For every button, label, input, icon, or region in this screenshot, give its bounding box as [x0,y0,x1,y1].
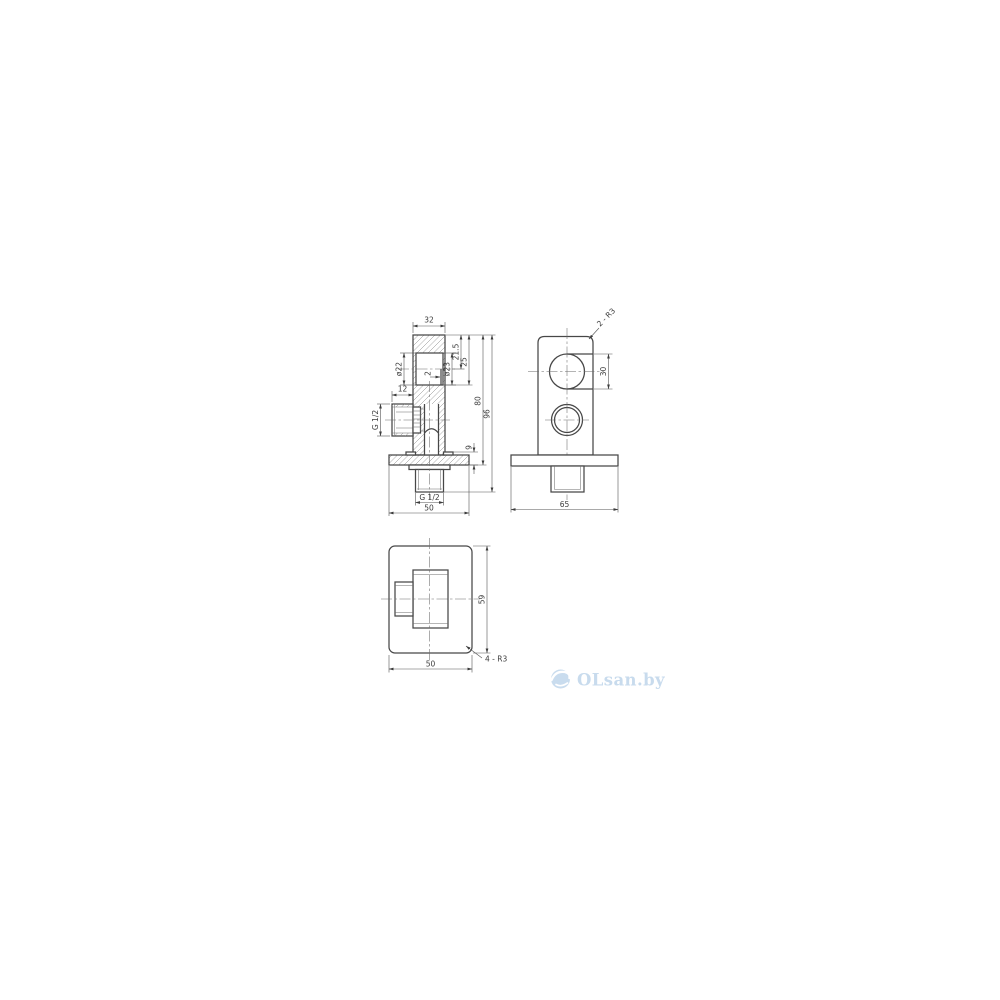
watermark-text: OLsan.by [577,671,665,690]
dim-50-plan: 50 [426,660,436,669]
dim-96: 96 [483,409,492,419]
dim-9: 9 [465,445,474,450]
internal-channel [425,404,439,455]
stub-thread-top [392,404,413,407]
dim-59: 59 [478,595,487,605]
dim-25: 25 [460,357,469,367]
technical-drawing-page: 32 12 G 1/2 ø22 ø23 2 21.5 25 80 [0,0,1000,1000]
flange-notch-left [406,452,416,455]
plan-view [381,538,480,663]
dim-80: 80 [474,396,483,406]
dim-thread-side: G 1/2 [371,410,380,430]
dim-step2: 2 [424,371,433,376]
stub-thread-bottom [392,433,413,436]
dim-32: 32 [424,316,434,325]
dim-d23: ø23 [443,362,452,376]
side-bottom-pipe [551,466,584,492]
dim-thread-bottom: G 1/2 [419,493,439,502]
flange-notch-right [444,452,454,455]
valve-drawing: 32 12 G 1/2 ø22 ø23 2 21.5 25 80 [0,0,1000,1000]
radius-leader [589,328,599,339]
dim-30: 30 [599,367,608,377]
watermark: OLsan.by [551,670,665,690]
dim-2r3: 2 - R3 [595,306,617,328]
dim-50-front: 50 [424,504,434,513]
side-wall-flange [511,455,618,466]
dim-12: 12 [398,385,408,394]
dim-d22: ø22 [395,362,404,376]
dim-4r3: 4 - R3 [485,655,507,664]
dim-65: 65 [560,500,570,509]
olsan-logo-icon [551,670,570,689]
wall-flange-section [389,455,469,465]
